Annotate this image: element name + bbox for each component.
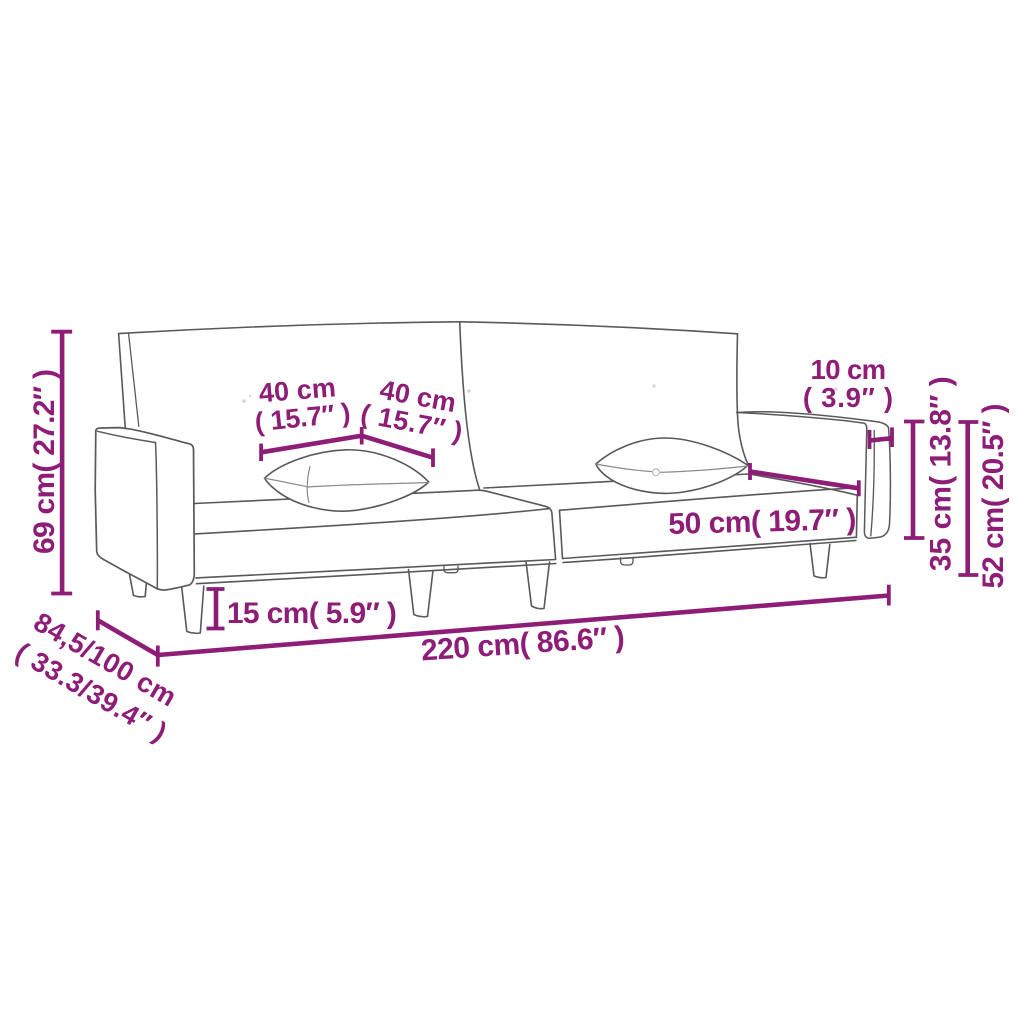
svg-text:50 cm( 19.7″ ): 50 cm( 19.7″ ) — [668, 503, 857, 541]
svg-text:( 3.9″ ): ( 3.9″ ) — [803, 382, 893, 413]
svg-text:69 cm( 27.2″ ): 69 cm( 27.2″ ) — [28, 369, 61, 554]
svg-text:52 cm( 20.5″ ): 52 cm( 20.5″ ) — [977, 404, 1010, 589]
svg-text:35 cm( 13.8″ ): 35 cm( 13.8″ ) — [925, 376, 958, 571]
svg-text:10 cm: 10 cm — [811, 354, 887, 385]
svg-text:15 cm( 5.9″ ): 15 cm( 5.9″ ) — [227, 597, 397, 630]
